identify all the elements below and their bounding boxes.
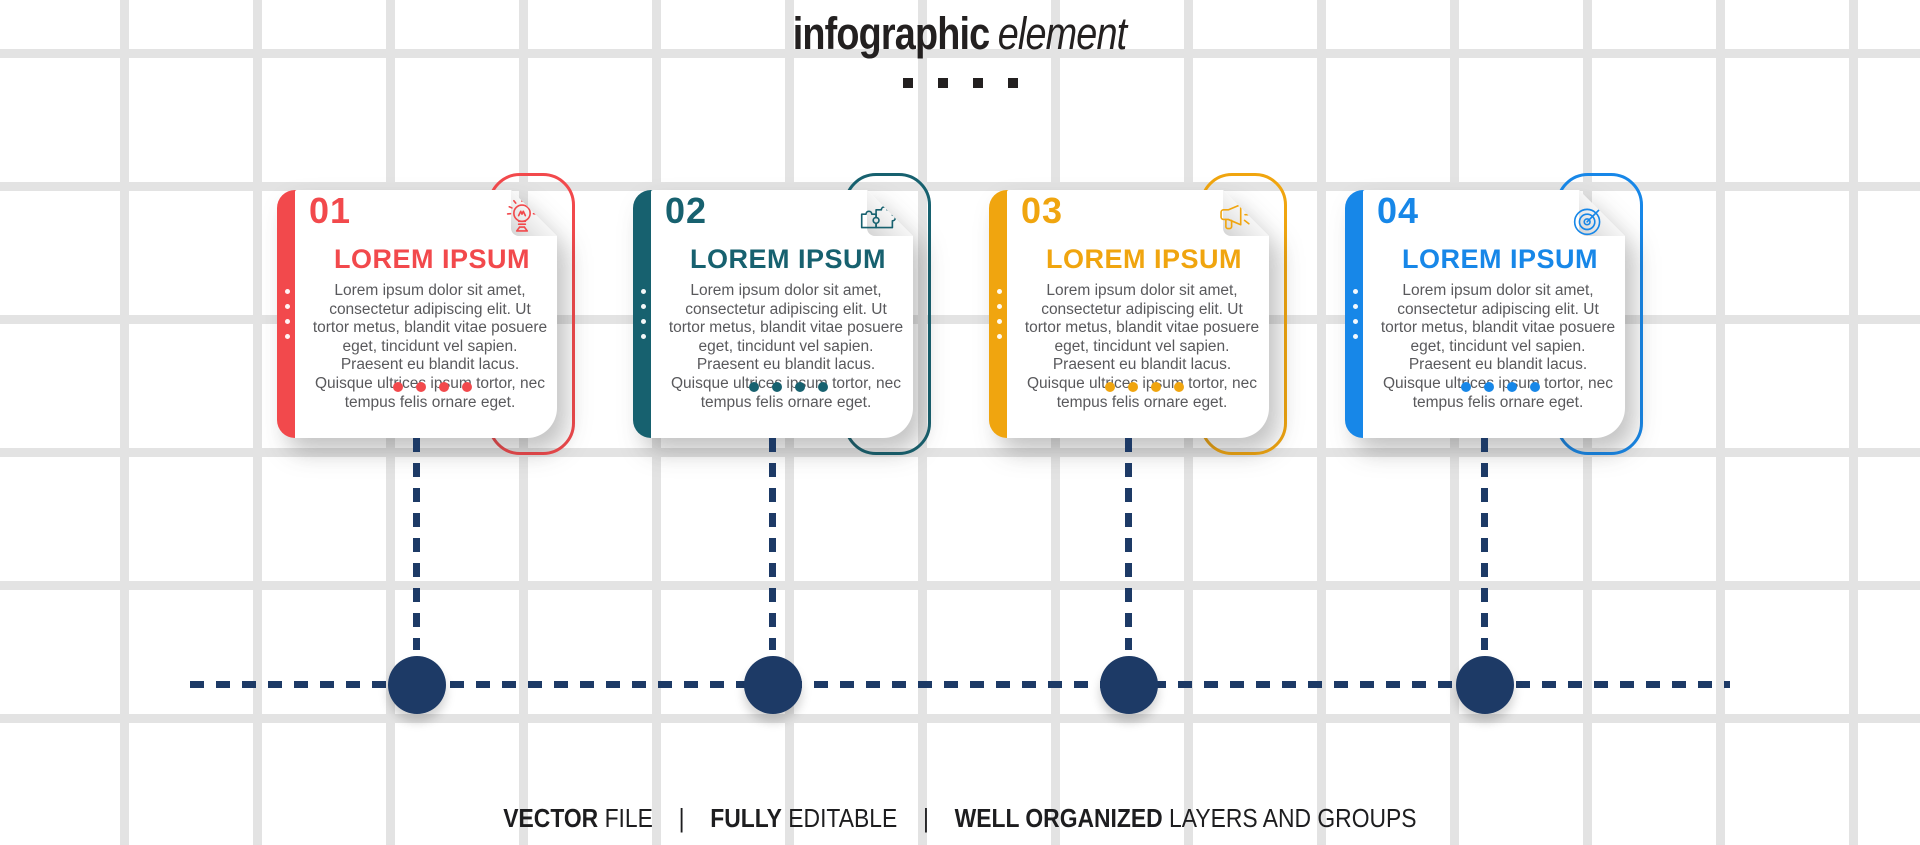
- card-dots: [669, 382, 907, 392]
- card-accent-bar: [989, 190, 1009, 438]
- step-number: 04: [1377, 190, 1419, 232]
- card-body-text: Lorem ipsum dolor sit amet, consectetur …: [667, 282, 905, 412]
- title-italic-text: element: [998, 8, 1127, 59]
- card-dots: [313, 382, 551, 392]
- timeline-connector: [769, 438, 776, 650]
- accent-dot: [795, 382, 805, 392]
- title-dots: [0, 78, 1920, 88]
- card-body-text: Lorem ipsum dolor sit amet, consectetur …: [1023, 282, 1261, 412]
- bar-dot: [1353, 304, 1358, 309]
- footer-separator: |: [679, 803, 685, 834]
- puzzle-icon: [855, 195, 901, 241]
- bar-dot: [285, 289, 290, 294]
- bar-dot: [641, 304, 646, 309]
- card-surface: 02 LOREM IPSUM Lorem ipsum dolor sit ame…: [633, 190, 913, 438]
- accent-dot: [462, 382, 472, 392]
- bar-dot: [997, 319, 1002, 324]
- bar-dot: [997, 304, 1002, 309]
- target-icon: [1567, 195, 1613, 241]
- square-dot: [973, 78, 983, 88]
- card-panel: 01 LOREM IPSUM Lorem ipsum dolor sit ame…: [295, 190, 557, 438]
- accent-dot: [1484, 382, 1494, 392]
- square-dot: [938, 78, 948, 88]
- card-surface: 03 LOREM IPSUM Lorem ipsum dolor sit ame…: [989, 190, 1269, 438]
- timeline-node-3: [1100, 656, 1158, 714]
- timeline-connector: [1481, 438, 1488, 650]
- card-step-4: 04 LOREM IPSUM Lorem ipsum dolor sit ame…: [1345, 190, 1625, 438]
- card-heading: LOREM IPSUM: [1381, 244, 1619, 275]
- bar-dot: [641, 319, 646, 324]
- square-dot: [1008, 78, 1018, 88]
- accent-dot: [1530, 382, 1540, 392]
- card-heading: LOREM IPSUM: [669, 244, 907, 275]
- timeline-node-1: [388, 656, 446, 714]
- square-dot: [903, 78, 913, 88]
- step-number: 03: [1021, 190, 1063, 232]
- footer-bold-text: VECTOR: [503, 803, 598, 833]
- footer-separator: |: [923, 803, 929, 834]
- bar-dot: [1353, 289, 1358, 294]
- step-number: 01: [309, 190, 351, 232]
- timeline-node-4: [1456, 656, 1514, 714]
- footer-regular-text: FILE: [605, 803, 653, 833]
- card-panel: 02 LOREM IPSUM Lorem ipsum dolor sit ame…: [651, 190, 913, 438]
- bar-dot: [285, 304, 290, 309]
- timeline-node-2: [744, 656, 802, 714]
- bar-dot: [285, 319, 290, 324]
- accent-dot: [1174, 382, 1184, 392]
- card-step-1: 01 LOREM IPSUM Lorem ipsum dolor sit ame…: [277, 190, 557, 438]
- bar-dot: [1353, 319, 1358, 324]
- step-number: 02: [665, 190, 707, 232]
- accent-dot: [1507, 382, 1517, 392]
- card-dots: [1025, 382, 1263, 392]
- accent-dot: [1105, 382, 1115, 392]
- accent-dot: [1461, 382, 1471, 392]
- bar-dot: [997, 289, 1002, 294]
- bar-dot: [997, 334, 1002, 339]
- page-title: infographicelement: [0, 8, 1920, 60]
- footer-regular-text: EDITABLE: [788, 803, 897, 833]
- accent-dot: [772, 382, 782, 392]
- accent-dot: [1151, 382, 1161, 392]
- bar-dot: [641, 289, 646, 294]
- bar-dot: [285, 334, 290, 339]
- card-body-text: Lorem ipsum dolor sit amet, consectetur …: [311, 282, 549, 412]
- accent-dot: [393, 382, 403, 392]
- bar-dot: [1353, 334, 1358, 339]
- footer-bold-text: FULLY: [710, 803, 782, 833]
- accent-dot: [439, 382, 449, 392]
- infographic-canvas: infographicelement 01: [0, 0, 1920, 845]
- accent-dot: [749, 382, 759, 392]
- megaphone-icon: [1211, 195, 1257, 241]
- card-body-text: Lorem ipsum dolor sit amet, consectetur …: [1379, 282, 1617, 412]
- card-step-2: 02 LOREM IPSUM Lorem ipsum dolor sit ame…: [633, 190, 913, 438]
- title-bold-text: infographic: [793, 8, 990, 59]
- card-heading: LOREM IPSUM: [1025, 244, 1263, 275]
- card-accent-bar: [1345, 190, 1365, 438]
- timeline-connector: [1125, 438, 1132, 650]
- bar-dot: [641, 334, 646, 339]
- card-panel: 03 LOREM IPSUM Lorem ipsum dolor sit ame…: [1007, 190, 1269, 438]
- card-surface: 01 LOREM IPSUM Lorem ipsum dolor sit ame…: [277, 190, 557, 438]
- card-accent-bar: [633, 190, 653, 438]
- footer-bold-text: WELL ORGANIZED: [955, 803, 1163, 833]
- card-dots: [1381, 382, 1619, 392]
- lightbulb-icon: [499, 195, 545, 241]
- card-surface: 04 LOREM IPSUM Lorem ipsum dolor sit ame…: [1345, 190, 1625, 438]
- accent-dot: [818, 382, 828, 392]
- accent-dot: [1128, 382, 1138, 392]
- card-panel: 04 LOREM IPSUM Lorem ipsum dolor sit ame…: [1363, 190, 1625, 438]
- accent-dot: [416, 382, 426, 392]
- timeline-connector: [413, 438, 420, 650]
- card-accent-bar: [277, 190, 297, 438]
- card-step-3: 03 LOREM IPSUM Lorem ipsum dolor sit ame…: [989, 190, 1269, 438]
- footer-regular-text: LAYERS AND GROUPS: [1169, 803, 1417, 833]
- card-heading: LOREM IPSUM: [313, 244, 551, 275]
- footer-note: VECTOR FILE | FULLY EDITABLE | WELL ORGA…: [0, 803, 1920, 834]
